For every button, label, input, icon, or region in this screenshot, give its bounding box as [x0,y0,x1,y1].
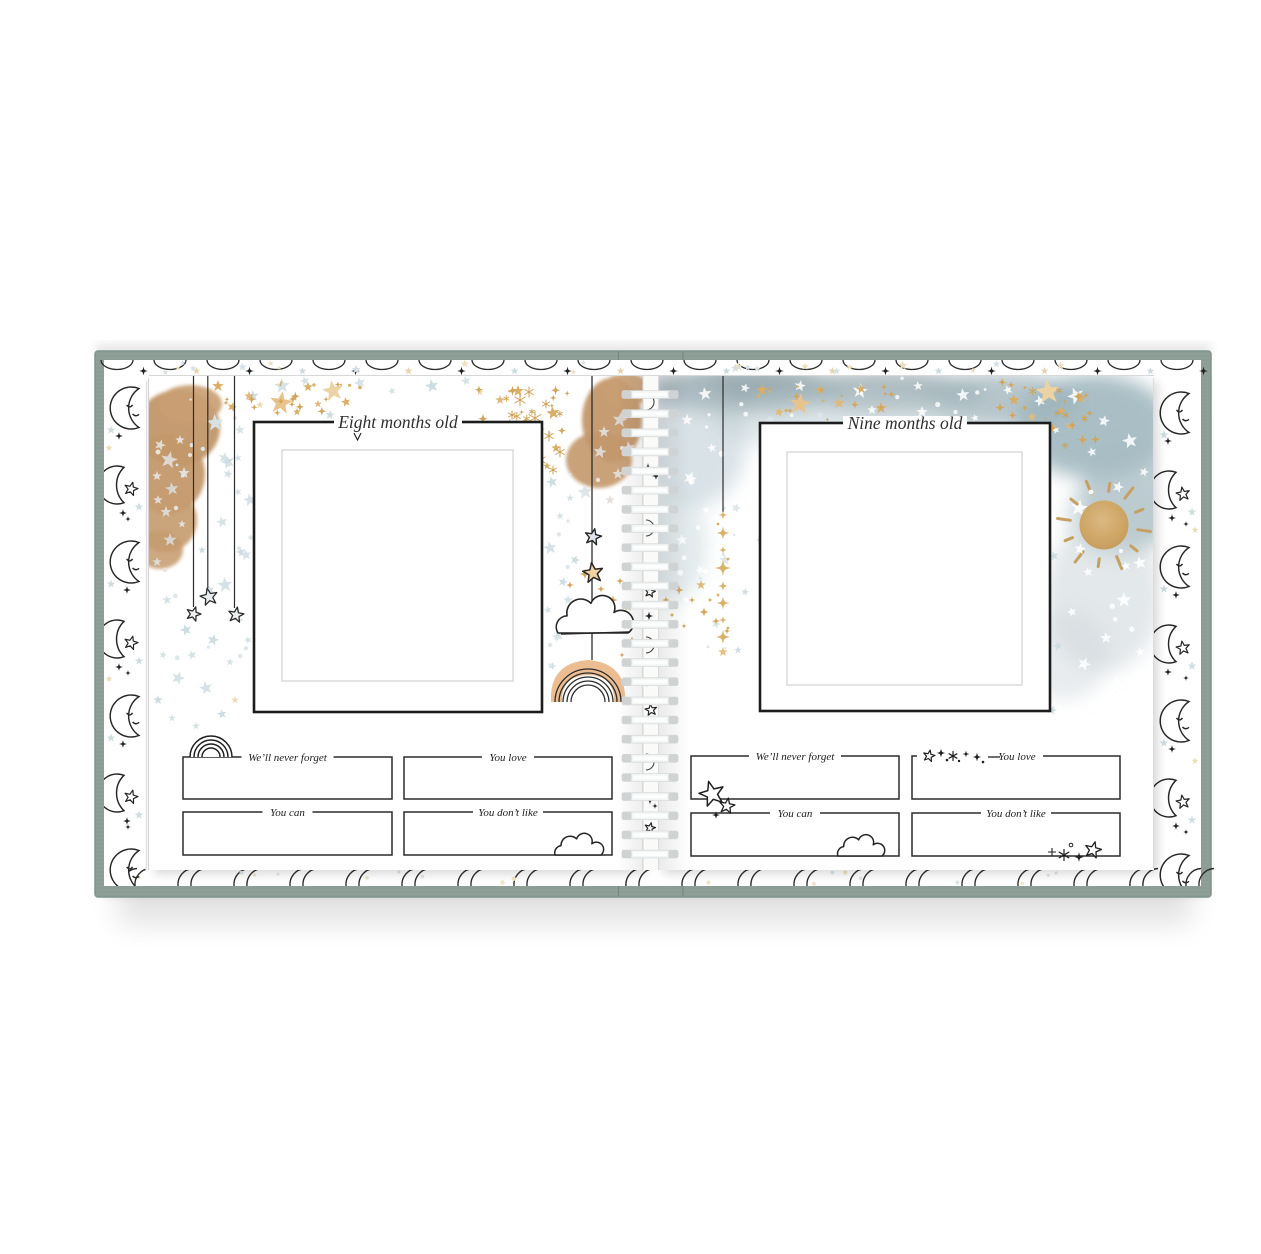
svg-text:You love: You love [998,751,1035,763]
svg-text:We’ll never forget: We’ll never forget [248,752,328,764]
svg-text:Nine months old: Nine months old [847,413,963,433]
svg-text:You love: You love [489,752,526,764]
svg-text:You don’t like: You don’t like [478,807,538,819]
svg-text:Eight months old: Eight months old [337,412,458,432]
svg-text:You don’t like: You don’t like [986,808,1046,820]
svg-text:We’ll never forget: We’ll never forget [756,751,836,763]
svg-text:You can: You can [270,807,305,819]
svg-text:You can: You can [778,808,813,820]
